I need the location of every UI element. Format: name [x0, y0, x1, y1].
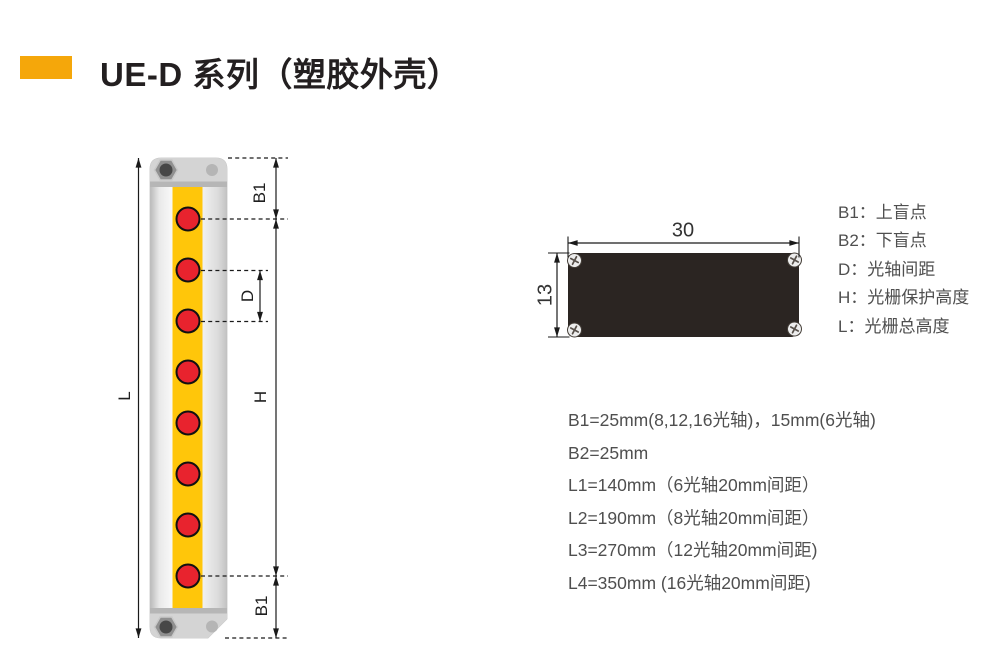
legend-item: B1：上盲点: [838, 199, 969, 227]
optical-axis-dot: [177, 412, 200, 435]
dim-label-13: 13: [535, 284, 558, 306]
top-cap-divider: [150, 182, 227, 188]
dim-label-B1-bottom: B1: [252, 596, 272, 617]
dim-label-B1-top: B1: [250, 183, 270, 204]
spec-line: L1=140mm（6光轴20mm间距）: [568, 469, 876, 502]
dim-label-30: 30: [672, 220, 694, 243]
mounting-bolt-bottom-icon: [155, 617, 178, 637]
spec-line: L2=190mm（8光轴20mm间距）: [568, 502, 876, 535]
optical-axis-dot: [177, 463, 200, 486]
dimension-legend: B1：上盲点 B2：下盲点 D：光轴间距 H：光栅保护高度 L：光栅总高度: [838, 199, 969, 341]
optical-axis-dot: [177, 361, 200, 384]
optical-axis-dot: [177, 208, 200, 231]
top-cap-hole-icon: [206, 164, 218, 176]
legend-item: B2：下盲点: [838, 227, 969, 255]
optical-axis-dot: [177, 565, 200, 588]
legend-item: H：光栅保护高度: [838, 284, 969, 312]
spec-list: B1=25mm(8,12,16光轴)，15mm(6光轴) B2=25mm L1=…: [568, 404, 876, 600]
beam-window-strip: [173, 187, 203, 608]
bottom-cap-hole-icon: [206, 621, 218, 633]
mounting-bolt-top-icon: [155, 160, 178, 180]
page: UE-D 系列（塑胶外壳）: [0, 0, 1000, 667]
bottom-cap-divider: [150, 608, 227, 614]
legend-item: D：光轴间距: [838, 256, 969, 284]
legend-item: L：光栅总高度: [838, 313, 969, 341]
cross-section-profile: [568, 253, 799, 337]
spec-line: L4=350mm (16光轴20mm间距): [568, 567, 876, 600]
spec-line: L3=270mm（12光轴20mm间距): [568, 534, 876, 567]
spec-line: B1=25mm(8,12,16光轴)，15mm(6光轴): [568, 404, 876, 437]
dim-label-L: L: [115, 391, 135, 400]
optical-axis-dot: [177, 514, 200, 537]
spec-line: B2=25mm: [568, 437, 876, 470]
optical-axis-dot: [177, 259, 200, 282]
dim-label-D: D: [238, 290, 258, 302]
dim-label-H: H: [251, 391, 271, 403]
optical-axis-dot: [177, 310, 200, 333]
